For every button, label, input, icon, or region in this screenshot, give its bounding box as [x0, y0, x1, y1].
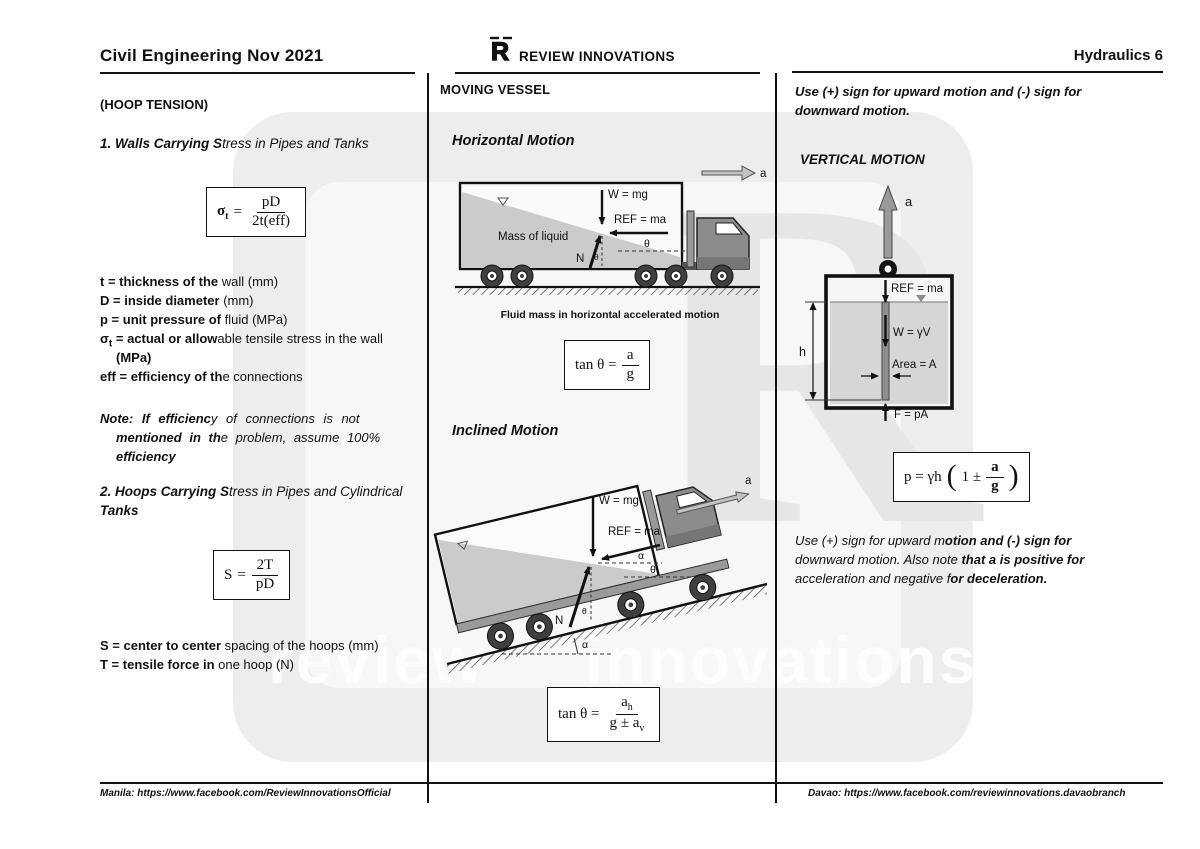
h-arrowhead-bottom — [810, 392, 817, 400]
label-mass-of-liquid: Mass of liquid — [498, 231, 568, 243]
note-line-2: mentioned in the problem, assume 100% — [116, 428, 380, 447]
label-acceleration: a — [760, 168, 767, 180]
diagram-horizontal-motion: Mass of liquid W = mg REF = ma N θ θ a — [450, 156, 765, 308]
label-area: Area = A — [892, 359, 937, 371]
definition-sigma-t-unit: (MPa) — [116, 348, 151, 367]
formula-tan-theta: tan θ = ag — [564, 340, 650, 390]
page-title-left: Civil Engineering Nov 2021 — [100, 46, 323, 66]
definition-T: T = tensile force in one hoop (N) — [100, 655, 294, 674]
usage-note-bottom-line3: acceleration and negative for decelerati… — [795, 569, 1047, 588]
column-divider-right — [775, 73, 777, 803]
definition-eff: eff = efficiency of the connections — [100, 367, 303, 386]
heading-inclined-motion: Inclined Motion — [452, 423, 558, 439]
column-divider-left — [427, 73, 429, 803]
note-line-3: efficiency — [116, 447, 176, 466]
formula-pressure-vertical: p = γh ( 1 ± ag ) — [893, 452, 1030, 502]
diagram-vertical-motion: a REF = ma W = γV Area = A F = pA h — [793, 180, 988, 435]
label-weight: W = γV — [893, 327, 931, 339]
acceleration-arrow — [702, 166, 755, 180]
label-theta: θ — [650, 564, 656, 576]
definition-p: p = unit pressure of fluid (MPa) — [100, 310, 287, 329]
exhaust-stack — [687, 211, 694, 267]
formula-tan-theta-inclined: tan θ = ah g ± av — [547, 687, 660, 742]
label-normal: N — [555, 615, 563, 627]
diagram-inclined-motion: W = mg REF = ma α θ N θ α a — [442, 442, 774, 680]
footer-manila-link: Manila: https://www.facebook.com/ReviewI… — [100, 788, 391, 799]
brand-logo-icon: R — [487, 34, 515, 64]
ground-hatch — [458, 287, 758, 295]
section-title-moving-vessel: MOVING VESSEL — [440, 82, 550, 97]
heading-hoops-carrying-stress-line2: Tanks — [100, 501, 139, 520]
page-title-right: Hydraulics 6 — [1074, 47, 1163, 64]
definition-D: D = inside diameter (mm) — [100, 291, 254, 310]
label-h: h — [799, 345, 806, 359]
formula-hoop-spacing: S = 2TpD — [213, 550, 290, 600]
usage-note-bottom-line2: downward motion. Also note that a is pos… — [795, 550, 1084, 569]
label-theta-small: θ — [582, 606, 587, 616]
label-weight: W = mg — [608, 189, 648, 201]
definition-S: S = center to center spacing of the hoop… — [100, 636, 379, 655]
footer-rule — [100, 782, 1163, 784]
diagram-caption: Fluid mass in horizontal accelerated mot… — [470, 309, 750, 321]
acceleration-arrow — [879, 186, 897, 258]
footer-davao-link: Davao: https://www.facebook.com/reviewin… — [808, 788, 1125, 799]
label-ref: REF = ma — [614, 214, 667, 226]
header-rule-right — [792, 71, 1163, 73]
heading-vertical-motion: VERTICAL MOTION — [800, 152, 925, 167]
formula-hoop-tensile-stress: σt = pD2t(eff) — [206, 187, 306, 237]
document-page: R review innovations Civil Engineering N… — [0, 0, 1200, 849]
h-arrowhead-top — [810, 302, 817, 310]
usage-note-top-line2: downward motion. — [795, 101, 910, 120]
label-alpha-base: α — [582, 639, 588, 651]
heading-hoops-carrying-stress: 2. Hoops Carrying Stress in Pipes and Cy… — [100, 482, 402, 501]
brand-name: REVIEW INNOVATIONS — [519, 49, 675, 64]
label-pressure-force: F = pA — [894, 409, 929, 421]
label-normal: N — [576, 253, 584, 265]
note-line-1: Note: If efficiency of connections is no… — [100, 409, 360, 428]
usage-note-top-line1: Use (+) sign for upward motion and (-) s… — [795, 82, 1081, 101]
label-ref: REF = ma — [608, 526, 661, 538]
heading-horizontal-motion: Horizontal Motion — [452, 133, 574, 149]
usage-note-bottom-line1: Use (+) sign for upward motion and (-) s… — [795, 531, 1071, 550]
label-ref: REF = ma — [891, 283, 944, 295]
header-rule-center — [455, 72, 760, 74]
label-theta-small: θ — [594, 252, 599, 262]
section-subtitle: (HOOP TENSION) — [100, 95, 208, 114]
definition-t: t = thickness of the wall (mm) — [100, 272, 278, 291]
heading-walls-carrying-stress: 1. Walls Carrying Stress in Pipes and Ta… — [100, 134, 369, 153]
header-rule-left — [100, 72, 415, 74]
label-acceleration: a — [745, 475, 752, 487]
lifting-lug-hole — [885, 266, 892, 273]
label-weight: W = mg — [599, 495, 639, 507]
label-theta: θ — [644, 238, 650, 250]
label-acceleration: a — [905, 194, 913, 209]
label-alpha: α — [638, 550, 644, 562]
svg-text:R: R — [491, 38, 509, 66]
